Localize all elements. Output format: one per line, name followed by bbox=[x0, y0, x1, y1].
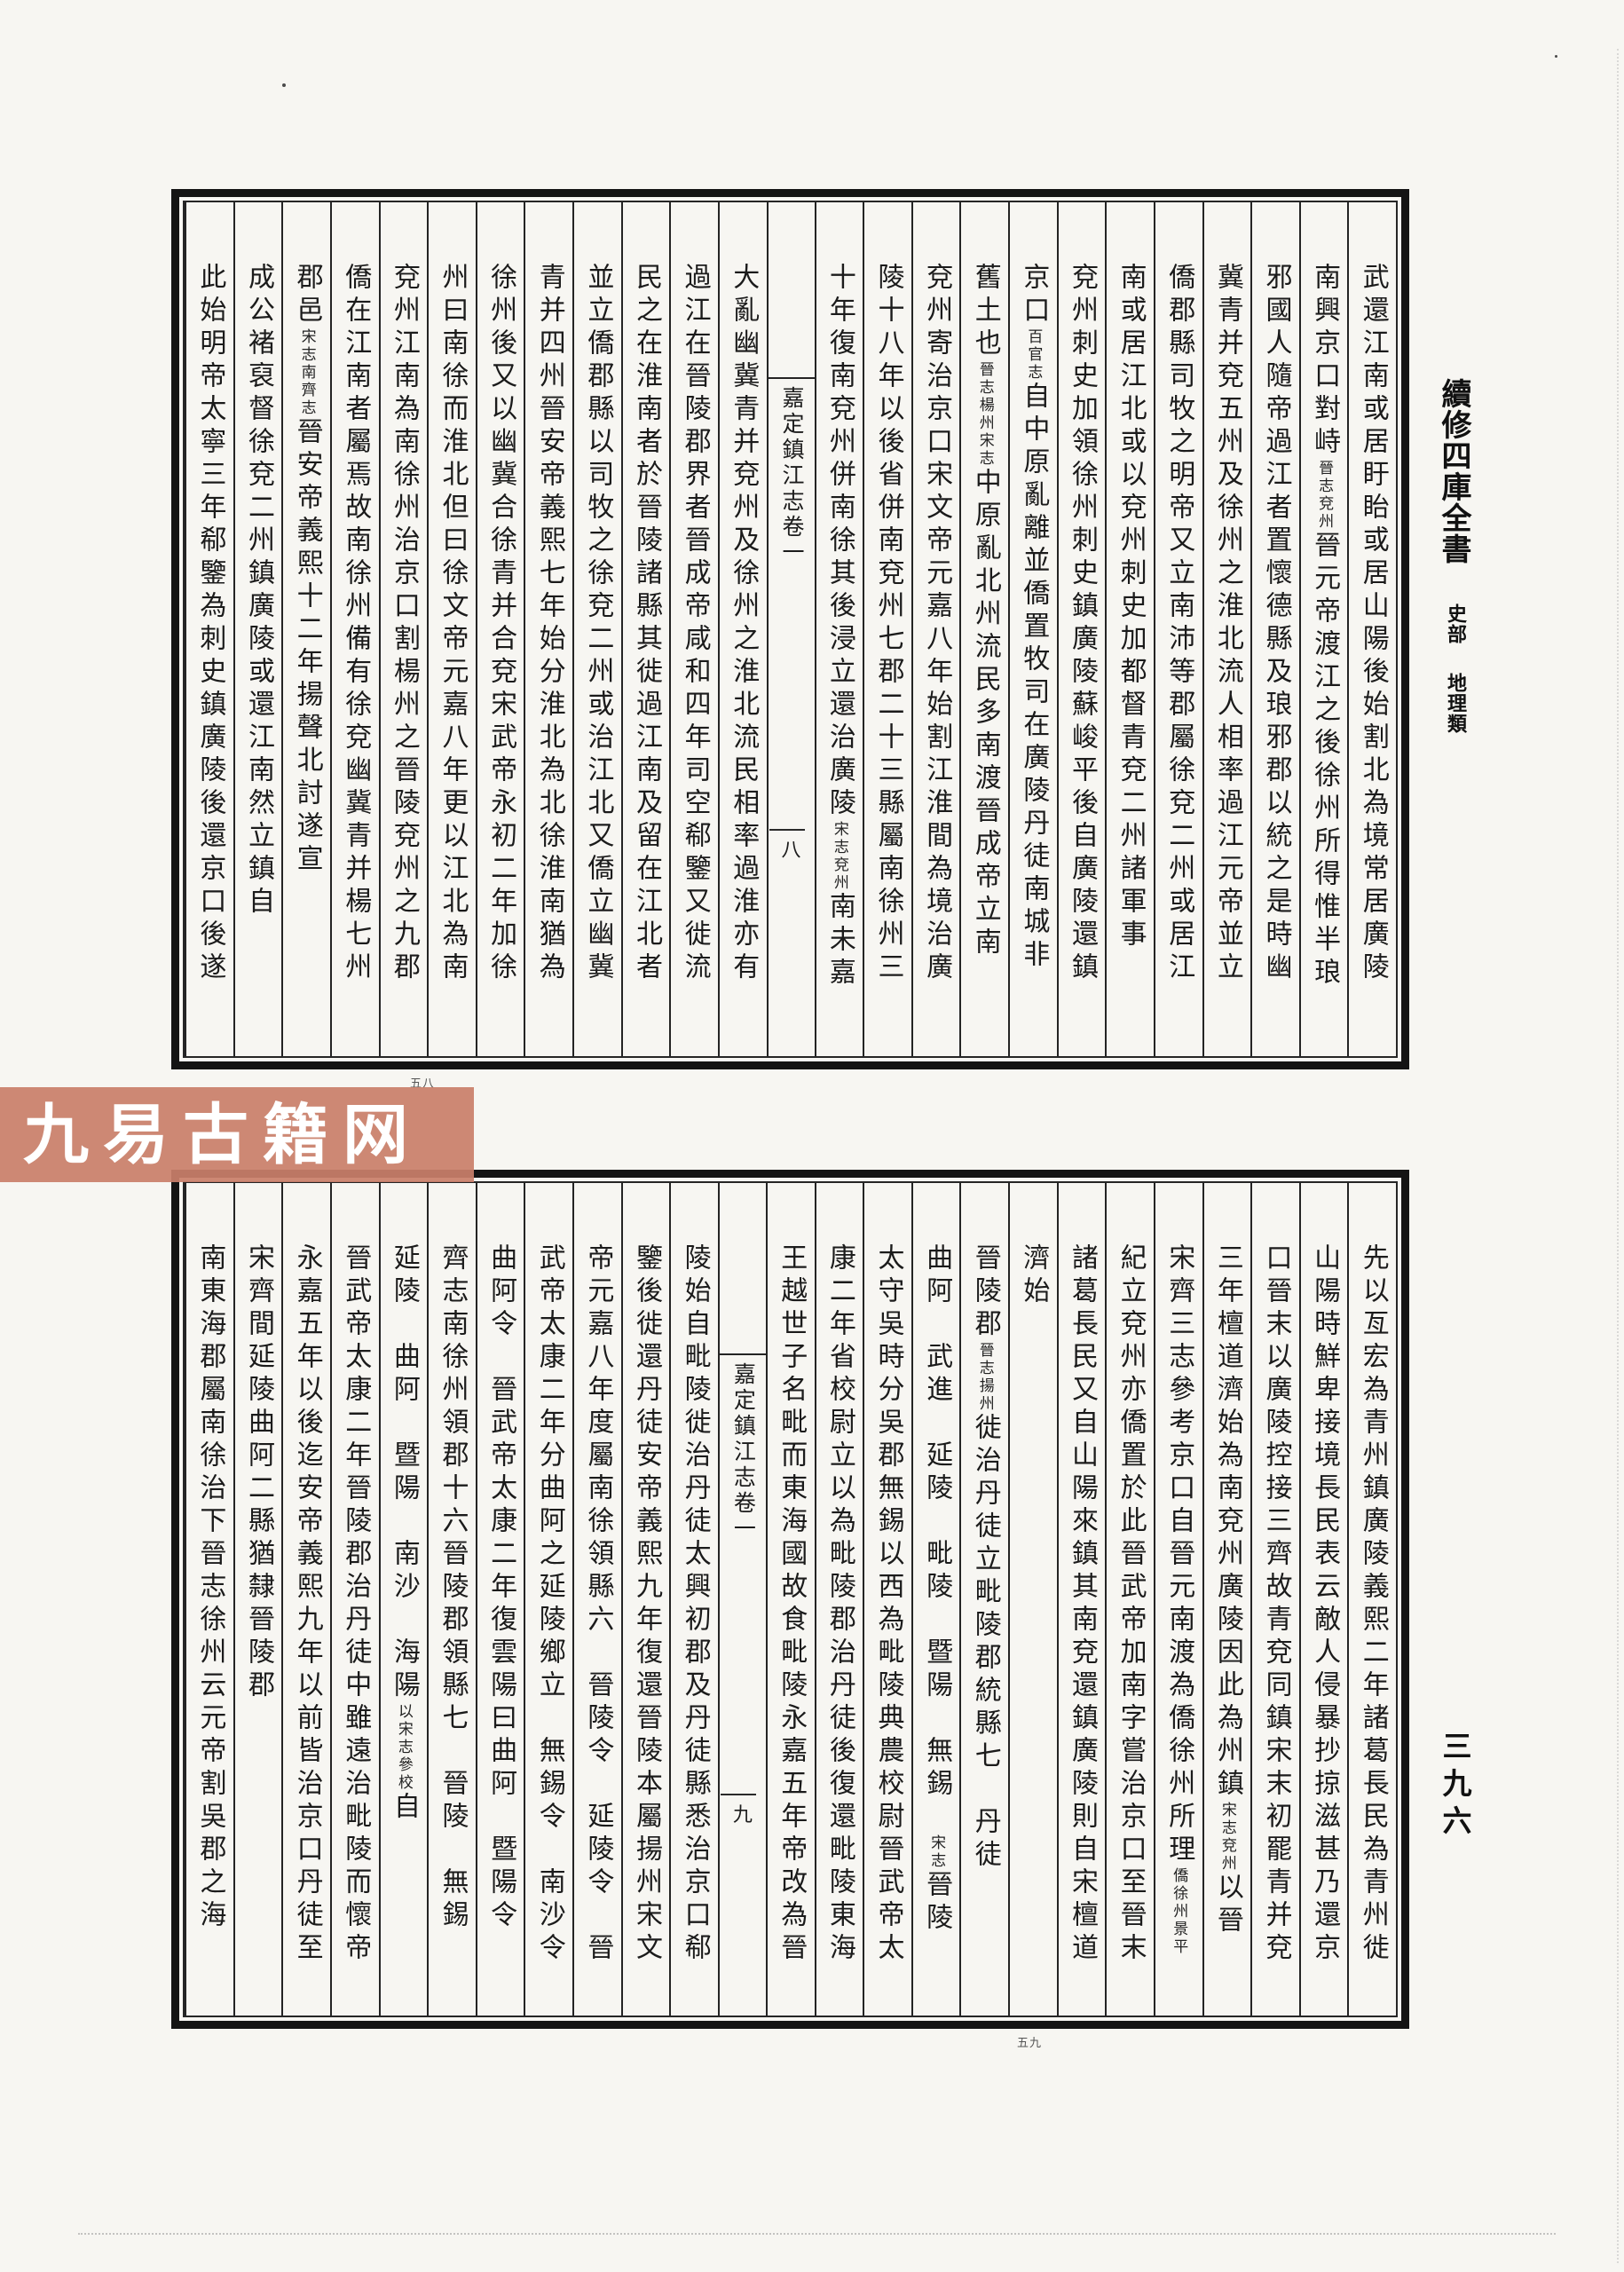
text-column: 晉武帝太康二年晉陵郡治丹徒中雖遠治毗陵而懷帝 bbox=[330, 1183, 379, 2016]
column-text: 兗州刺史加領徐州刺史鎮廣陵蘇峻平後自廣陵還鎮 bbox=[1068, 263, 1095, 985]
lower-text-frame: 先以亙宏為青州鎮廣陵義熙二年諸葛長民為青州徙山陽時鮮卑接境長民表云敵人侵暴抄掠滋… bbox=[171, 1170, 1409, 2029]
text-column: 並立僑郡縣以司牧之徐兗二州或治江北又僑立幽冀 bbox=[572, 202, 621, 1056]
text-segment: 南東海郡屬南徐治下晉志徐州云元帝割吳郡之海 bbox=[195, 1243, 225, 1933]
text-segment: 十年復南兗州併南徐其後浸立還治廣陵 bbox=[825, 263, 855, 821]
text-column: 民之在淮南者於晉陵諸縣其徙過江南及留在江北者 bbox=[621, 202, 670, 1056]
text-segment: 陵十八年以後省併南兗州七郡二十三縣屬南徐州三 bbox=[873, 263, 903, 985]
text-column: 陵十八年以後省併南兗州七郡二十三縣屬南徐州三 bbox=[863, 202, 911, 1056]
upper-fold-column: 嘉定鎮江志卷一八 bbox=[767, 202, 815, 1056]
column-text: 曲阿 武進 延陵 毗陵 暨陽 無錫 宋志晉陵 bbox=[923, 1243, 950, 1936]
column-text: 鑒後徙還丹徒安帝義熙九年復還晉陵本屬揚州宋文 bbox=[633, 1243, 659, 1966]
text-column: 曲阿 武進 延陵 毗陵 暨陽 無錫 宋志晉陵 bbox=[911, 1183, 960, 2016]
column-text: 青并四州晉安帝義熙七年始分淮北為北徐淮南猶為 bbox=[536, 263, 563, 985]
text-column: 十年復南兗州併南徐其後浸立還治廣陵宋志兗州南未嘉 bbox=[815, 202, 863, 1056]
text-segment: 大亂幽冀青并兗州及徐州之淮北流民相率過淮亦有 bbox=[729, 263, 758, 985]
text-column: 太守吳時分吳郡無錫以西為毗陵典農校尉晉武帝太 bbox=[863, 1183, 911, 2016]
text-segment: 三年檀道濟始為南兗州廣陵因此為州鎮 bbox=[1213, 1243, 1242, 1802]
text-column: 郡邑宋志南齊志晉安帝義熙十二年揚聲北討遂宣 bbox=[281, 202, 330, 1056]
column-text: 紀立兗州亦僑置於此晉武帝加南字嘗治京口至晉末 bbox=[1117, 1243, 1144, 1966]
text-column: 口晉末以廣陵控接三齊故青兗同鎮宋末初罷青并兗 bbox=[1250, 1183, 1299, 2016]
text-segment: 冀青并兗五州及徐州之淮北流人相率過江元帝並立 bbox=[1213, 263, 1242, 985]
column-text: 齊志南徐州領郡十六晉陵郡領縣七 晉陵 無錫 bbox=[438, 1243, 465, 1933]
text-column: 兗州刺史加領徐州刺史鎮廣陵蘇峻平後自廣陵還鎮 bbox=[1057, 202, 1106, 1056]
text-column: 僑郡縣司牧之明帝又立南沛等郡屬徐兗二州或居江 bbox=[1154, 202, 1202, 1056]
text-column: 僑在江南者屬焉故南徐州備有徐兗幽冀青并楊七州 bbox=[330, 202, 379, 1056]
column-text: 成公褚裒督徐兗二州鎮廣陵或還江南然立鎮自 bbox=[245, 263, 272, 919]
text-column: 邪國人隨帝過江者置懷德縣及琅邪郡以統之是時幽 bbox=[1250, 202, 1299, 1056]
column-text: 晉陵郡晉志揚州徙治丹徒立毗陵郡統縣七 丹徒 bbox=[972, 1243, 998, 1873]
text-segment: 兗州江南為南徐州治京口割楊州之晉陵兗州之九郡 bbox=[390, 263, 419, 985]
column-text: 諸葛長民又自山陽來鎮其南兗還鎮廣陵則自宋檀道 bbox=[1068, 1243, 1095, 1966]
watermark-banner: 九易古籍网 bbox=[0, 1087, 474, 1182]
page-number: 三九六 bbox=[1439, 1731, 1468, 1842]
text-column: 舊土也晉志楊州宋志中原亂北州流民多南渡晉成帝立南 bbox=[959, 202, 1008, 1056]
column-text: 舊土也晉志楊州宋志中原亂北州流民多南渡晉成帝立南 bbox=[972, 263, 998, 960]
text-segment: 紀立兗州亦僑置於此晉武帝加南字嘗治京口至晉末 bbox=[1116, 1243, 1146, 1966]
text-segment: 晉陵郡 bbox=[971, 1243, 1000, 1342]
text-segment: 中原亂北州流民多南渡晉成帝立南 bbox=[971, 468, 1000, 960]
column-text: 武還江南或居盱眙或居山陽後始割北為境常居廣陵 bbox=[1360, 263, 1386, 985]
text-segment: 山陽時鮮卑接境長民表云敵人侵暴抄掠滋甚乃還京 bbox=[1310, 1243, 1339, 1966]
text-segment: 京口 bbox=[1019, 263, 1048, 328]
column-text: 宋齊間延陵曲阿二縣猶隸晉陵郡 bbox=[245, 1243, 272, 1703]
text-segment: 成公褚裒督徐兗二州鎮廣陵或還江南然立鎮自 bbox=[244, 263, 273, 919]
text-segment: 鑒後徙還丹徒安帝義熙九年復還晉陵本屬揚州宋文 bbox=[632, 1243, 661, 1966]
text-segment: 徙治丹徒立毗陵郡統縣七 丹徒 bbox=[971, 1413, 1000, 1873]
column-text: 帝元嘉八年度屬南徐領縣六 晉陵令 延陵令 晉 bbox=[584, 1243, 611, 1966]
interlinear-note: 以宋志參校 bbox=[396, 1703, 413, 1792]
text-column: 南東海郡屬南徐治下晉志徐州云元帝割吳郡之海 bbox=[185, 1183, 233, 2016]
interlinear-note: 宋志南齊志 bbox=[299, 328, 316, 417]
text-segment: 宋齊間延陵曲阿二縣猶隸晉陵郡 bbox=[244, 1243, 273, 1703]
text-column: 大亂幽冀青并兗州及徐州之淮北流民相率過淮亦有 bbox=[718, 202, 767, 1056]
column-text: 武帝太康二年分曲阿之延陵鄉立 無錫令 南沙令 bbox=[536, 1243, 563, 1966]
scanned-book-page: 武還江南或居盱眙或居山陽後始割北為境常居廣陵南興京口對峙晉志兗州晉元帝渡江之後徐… bbox=[0, 0, 1624, 2272]
column-text: 邪國人隨帝過江者置懷德縣及琅邪郡以統之是時幽 bbox=[1262, 263, 1289, 985]
fold-empty-box bbox=[769, 202, 815, 379]
volume-title: 嘉定鎮江志卷一 bbox=[731, 1362, 753, 1542]
text-column: 南或居江北或以兗州刺史加都督青兗二州諸軍事 bbox=[1105, 202, 1154, 1056]
column-text: 大亂幽冀青并兗州及徐州之淮北流民相率過淮亦有 bbox=[729, 263, 756, 985]
text-segment: 武帝太康二年分曲阿之延陵鄉立 無錫令 南沙令 bbox=[535, 1243, 564, 1966]
text-segment: 以晉 bbox=[1213, 1873, 1242, 1938]
column-text: 先以亙宏為青州鎮廣陵義熙二年諸葛長民為青州徙 bbox=[1360, 1243, 1386, 1966]
text-segment: 邪國人隨帝過江者置懷德縣及琅邪郡以統之是時幽 bbox=[1261, 263, 1290, 985]
text-segment: 南或居江北或以兗州刺史加都督青兗二州諸軍事 bbox=[1116, 263, 1146, 952]
text-column: 宋齊三志參考京口自晉元南渡為僑徐州所理僑徐州景平 bbox=[1154, 1183, 1202, 2016]
text-segment: 太守吳時分吳郡無錫以西為毗陵典農校尉晉武帝太 bbox=[873, 1243, 903, 1966]
text-segment: 帝元嘉八年度屬南徐領縣六 晉陵令 延陵令 晉 bbox=[583, 1243, 612, 1966]
text-column: 冀青并兗五州及徐州之淮北流人相率過江元帝並立 bbox=[1202, 202, 1251, 1056]
text-column: 武帝太康二年分曲阿之延陵鄉立 無錫令 南沙令 bbox=[524, 1183, 572, 2016]
text-column: 過江在晉陵郡界者晉成帝咸和四年司空郗鑒又徙流 bbox=[669, 202, 718, 1056]
section-label: 史部 bbox=[1446, 603, 1465, 644]
text-segment: 康二年省校尉立以為毗陵郡治丹徒後復還毗陵東海 bbox=[825, 1243, 855, 1966]
column-text: 此始明帝太寧三年郗鑒為刺史鎮廣陵後還京口後遂 bbox=[196, 263, 223, 985]
text-column: 鑒後徙還丹徒安帝義熙九年復還晉陵本屬揚州宋文 bbox=[621, 1183, 670, 2016]
lower-fold-column: 嘉定鎮江志卷一九 bbox=[718, 1183, 766, 2016]
text-column: 京口百官志自中原亂離並僑置牧司在廣陵丹徒南城非 bbox=[1008, 202, 1057, 1056]
text-segment: 自 bbox=[390, 1792, 419, 1825]
text-column: 曲阿令 晉武帝太康二年復雲陽曰曲阿 暨陽令 bbox=[476, 1183, 524, 2016]
text-segment: 僑郡縣司牧之明帝又立南沛等郡屬徐兗二州或居江 bbox=[1164, 263, 1194, 985]
text-column: 徐州後又以幽冀合徐青并合兗宋武帝永初二年加徐 bbox=[476, 202, 524, 1056]
column-text: 州曰南徐而淮北但曰徐文帝元嘉八年更以江北為南 bbox=[438, 263, 465, 985]
column-text: 並立僑郡縣以司牧之徐兗二州或治江北又僑立幽冀 bbox=[584, 263, 611, 985]
text-segment: 諸葛長民又自山陽來鎮其南兗還鎮廣陵則自宋檀道 bbox=[1068, 1243, 1097, 1966]
text-column: 先以亙宏為青州鎮廣陵義熙二年諸葛長民為青州徙 bbox=[1347, 1183, 1396, 2016]
lower-under-mark: 五九 bbox=[1017, 2033, 1042, 2050]
lower-frame-columns: 先以亙宏為青州鎮廣陵義熙二年諸葛長民為青州徙山陽時鮮卑接境長民表云敵人侵暴抄掠滋… bbox=[183, 1181, 1398, 2017]
text-column: 濟始 bbox=[1008, 1183, 1057, 2016]
watermark-text: 九易古籍网 bbox=[0, 1102, 422, 1168]
column-text: 僑郡縣司牧之明帝又立南沛等郡屬徐兗二州或居江 bbox=[1165, 263, 1192, 985]
text-segment: 晉安帝義熙十二年揚聲北討遂宣 bbox=[293, 417, 322, 877]
column-text: 京口百官志自中原亂離並僑置牧司在廣陵丹徒南城非 bbox=[1020, 263, 1046, 973]
text-column: 宋齊間延陵曲阿二縣猶隸晉陵郡 bbox=[233, 1183, 282, 2016]
column-text: 徐州後又以幽冀合徐青并合兗宋武帝永初二年加徐 bbox=[487, 263, 514, 985]
scan-edge-line-right bbox=[1617, 49, 1619, 2263]
scan-speck bbox=[1555, 55, 1557, 58]
text-segment: 自中原亂離並僑置牧司在廣陵丹徒南城非 bbox=[1019, 382, 1048, 973]
interlinear-note: 宋志兗州 bbox=[1219, 1802, 1236, 1873]
upper-text-frame: 武還江南或居盱眙或居山陽後始割北為境常居廣陵南興京口對峙晉志兗州晉元帝渡江之後徐… bbox=[171, 189, 1409, 1069]
text-column: 此始明帝太寧三年郗鑒為刺史鎮廣陵後還京口後遂 bbox=[185, 202, 233, 1056]
text-segment: 晉陵 bbox=[922, 1870, 951, 1936]
text-segment: 南未嘉 bbox=[825, 892, 855, 990]
text-segment: 僑在江南者屬焉故南徐州備有徐兗幽冀青并楊七州 bbox=[341, 263, 370, 985]
text-column: 康二年省校尉立以為毗陵郡治丹徒後復還毗陵東海 bbox=[815, 1183, 863, 2016]
column-text: 濟始 bbox=[1020, 1243, 1046, 1309]
fold-empty-box bbox=[720, 1183, 766, 1355]
column-text: 太守吳時分吳郡無錫以西為毗陵典農校尉晉武帝太 bbox=[874, 1243, 901, 1966]
text-segment: 濟始 bbox=[1019, 1243, 1048, 1309]
column-text: 兗州江南為南徐州治京口割楊州之晉陵兗州之九郡 bbox=[390, 263, 417, 985]
text-column: 南興京口對峙晉志兗州晉元帝渡江之後徐州所得惟半琅 bbox=[1299, 202, 1348, 1056]
column-text: 南興京口對峙晉志兗州晉元帝渡江之後徐州所得惟半琅 bbox=[1311, 263, 1337, 990]
column-text: 南或居江北或以兗州刺史加都督青兗二州諸軍事 bbox=[1117, 263, 1144, 952]
text-segment: 此始明帝太寧三年郗鑒為刺史鎮廣陵後還京口後遂 bbox=[195, 263, 225, 985]
text-segment: 州曰南徐而淮北但曰徐文帝元嘉八年更以江北為南 bbox=[438, 263, 467, 985]
text-segment: 青并四州晉安帝義熙七年始分淮北為北徐淮南猶為 bbox=[535, 263, 564, 985]
text-segment: 舊土也 bbox=[971, 263, 1000, 361]
column-text: 陵十八年以後省併南兗州七郡二十三縣屬南徐州三 bbox=[874, 263, 901, 985]
column-text: 過江在晉陵郡界者晉成帝咸和四年司空郗鑒又徙流 bbox=[682, 263, 708, 985]
text-segment: 陵始自毗陵徙治丹徒太興初郡及丹徒縣悉治京口郗 bbox=[681, 1243, 710, 1966]
column-text: 宋齊三志參考京口自晉元南渡為僑徐州所理僑徐州景平 bbox=[1165, 1243, 1192, 1956]
category-label: 地理類 bbox=[1446, 673, 1465, 734]
series-title: 續修四庫全書 bbox=[1438, 378, 1468, 564]
text-segment: 南興京口對峙 bbox=[1310, 263, 1339, 460]
text-segment: 宋齊三志參考京口自晉元南渡為僑徐州所理 bbox=[1164, 1243, 1194, 1867]
text-segment: 過江在晉陵郡界者晉成帝咸和四年司空郗鑒又徙流 bbox=[681, 263, 710, 985]
text-column: 青并四州晉安帝義熙七年始分淮北為北徐淮南猶為 bbox=[524, 202, 572, 1056]
text-segment: 齊志南徐州領郡十六晉陵郡領縣七 晉陵 無錫 bbox=[438, 1243, 467, 1933]
column-text: 康二年省校尉立以為毗陵郡治丹徒後復還毗陵東海 bbox=[826, 1243, 853, 1966]
text-column: 晉陵郡晉志揚州徙治丹徒立毗陵郡統縣七 丹徒 bbox=[959, 1183, 1008, 2016]
volume-title: 嘉定鎮江志卷一 bbox=[780, 386, 802, 566]
scan-speck bbox=[282, 83, 286, 87]
text-segment: 晉武帝太康二年晉陵郡治丹徒中雖遠治毗陵而懷帝 bbox=[341, 1243, 370, 1966]
text-segment: 郡邑 bbox=[293, 263, 322, 328]
leaf-number: 八 bbox=[781, 834, 800, 863]
text-segment: 晉元帝渡江之後徐州所得惟半琅 bbox=[1310, 531, 1339, 990]
text-column: 三年檀道濟始為南兗州廣陵因此為州鎮宋志兗州以晉 bbox=[1202, 1183, 1251, 2016]
text-segment: 兗州刺史加領徐州刺史鎮廣陵蘇峻平後自廣陵還鎮 bbox=[1068, 263, 1097, 985]
interlinear-note: 百官志 bbox=[1025, 328, 1042, 382]
column-text: 郡邑宋志南齊志晉安帝義熙十二年揚聲北討遂宣 bbox=[294, 263, 320, 877]
leaf-number: 九 bbox=[733, 1799, 753, 1827]
text-segment: 並立僑郡縣以司牧之徐兗二州或治江北又僑立幽冀 bbox=[583, 263, 612, 985]
text-column: 陵始自毗陵徙治丹徒太興初郡及丹徒縣悉治京口郗 bbox=[669, 1183, 718, 2016]
text-segment: 先以亙宏為青州鎮廣陵義熙二年諸葛長民為青州徙 bbox=[1359, 1243, 1388, 1966]
text-column: 成公褚裒督徐兗二州鎮廣陵或還江南然立鎮自 bbox=[233, 202, 282, 1056]
column-text: 民之在淮南者於晉陵諸縣其徙過江南及留在江北者 bbox=[633, 263, 659, 985]
text-column: 延陵 曲阿 暨陽 南沙 海陽以宋志參校自 bbox=[379, 1183, 428, 2016]
column-text: 南東海郡屬南徐治下晉志徐州云元帝割吳郡之海 bbox=[196, 1243, 223, 1933]
text-column: 武還江南或居盱眙或居山陽後始割北為境常居廣陵 bbox=[1347, 202, 1396, 1056]
column-text: 僑在江南者屬焉故南徐州備有徐兗幽冀青并楊七州 bbox=[342, 263, 368, 985]
column-text: 曲阿令 晉武帝太康二年復雲陽曰曲阿 暨陽令 bbox=[487, 1243, 514, 1933]
text-segment: 民之在淮南者於晉陵諸縣其徙過江南及留在江北者 bbox=[632, 263, 661, 985]
text-segment: 永嘉五年以後迄安帝義熙九年以前皆治京口丹徒至 bbox=[293, 1243, 322, 1966]
column-text: 冀青并兗五州及徐州之淮北流人相率過江元帝並立 bbox=[1214, 263, 1241, 985]
interlinear-note: 宋志兗州 bbox=[832, 821, 848, 892]
column-text: 兗州寄治京口宋文帝元嘉八年始割江淮間為境治廣 bbox=[923, 263, 950, 985]
column-text: 陵始自毗陵徙治丹徒太興初郡及丹徒縣悉治京口郗 bbox=[682, 1243, 708, 1966]
text-column: 紀立兗州亦僑置於此晉武帝加南字嘗治京口至晉末 bbox=[1105, 1183, 1154, 2016]
interlinear-note: 晉志兗州 bbox=[1316, 460, 1333, 531]
text-segment: 徐州後又以幽冀合徐青并合兗宋武帝永初二年加徐 bbox=[486, 263, 516, 985]
text-column: 帝元嘉八年度屬南徐領縣六 晉陵令 延陵令 晉 bbox=[572, 1183, 621, 2016]
text-segment: 曲阿 武進 延陵 毗陵 暨陽 無錫 bbox=[922, 1243, 951, 1834]
text-segment: 王越世子名毗而東海國故食毗陵永嘉五年帝改為晉 bbox=[777, 1243, 806, 1966]
text-segment: 延陵 曲阿 暨陽 南沙 海陽 bbox=[390, 1243, 419, 1703]
interlinear-note: 晉志揚州 bbox=[977, 1342, 994, 1413]
upper-frame-columns: 武還江南或居盱眙或居山陽後始割北為境常居廣陵南興京口對峙晉志兗州晉元帝渡江之後徐… bbox=[183, 201, 1398, 1058]
text-segment: 口晉末以廣陵控接三齊故青兗同鎮宋末初罷青并兗 bbox=[1261, 1243, 1290, 1966]
scan-edge-line-bottom bbox=[78, 2233, 1556, 2235]
text-column: 王越世子名毗而東海國故食毗陵永嘉五年帝改為晉 bbox=[766, 1183, 815, 2016]
text-column: 州曰南徐而淮北但曰徐文帝元嘉八年更以江北為南 bbox=[427, 202, 476, 1056]
text-column: 山陽時鮮卑接境長民表云敵人侵暴抄掠滋甚乃還京 bbox=[1299, 1183, 1348, 2016]
column-text: 口晉末以廣陵控接三齊故青兗同鎮宋末初罷青并兗 bbox=[1262, 1243, 1289, 1966]
interlinear-note: 僑徐州景平 bbox=[1171, 1867, 1187, 1956]
column-text: 山陽時鮮卑接境長民表云敵人侵暴抄掠滋甚乃還京 bbox=[1311, 1243, 1337, 1966]
column-text: 十年復南兗州併南徐其後浸立還治廣陵宋志兗州南未嘉 bbox=[826, 263, 853, 990]
text-column: 齊志南徐州領郡十六晉陵郡領縣七 晉陵 無錫 bbox=[427, 1183, 476, 2016]
text-column: 諸葛長民又自山陽來鎮其南兗還鎮廣陵則自宋檀道 bbox=[1057, 1183, 1106, 2016]
text-segment: 兗州寄治京口宋文帝元嘉八年始割江淮間為境治廣 bbox=[922, 263, 951, 985]
column-text: 晉武帝太康二年晉陵郡治丹徒中雖遠治毗陵而懷帝 bbox=[342, 1243, 368, 1966]
text-column: 永嘉五年以後迄安帝義熙九年以前皆治京口丹徒至 bbox=[281, 1183, 330, 2016]
column-text: 三年檀道濟始為南兗州廣陵因此為州鎮宋志兗州以晉 bbox=[1214, 1243, 1241, 1938]
interlinear-note: 宋志 bbox=[928, 1834, 945, 1870]
text-column: 兗州寄治京口宋文帝元嘉八年始割江淮間為境治廣 bbox=[911, 202, 960, 1056]
text-column: 兗州江南為南徐州治京口割楊州之晉陵兗州之九郡 bbox=[379, 202, 428, 1056]
text-segment: 曲阿令 晉武帝太康二年復雲陽曰曲阿 暨陽令 bbox=[486, 1243, 516, 1933]
column-text: 王越世子名毗而東海國故食毗陵永嘉五年帝改為晉 bbox=[777, 1243, 804, 1966]
interlinear-note: 晉志楊州宋志 bbox=[977, 361, 994, 468]
column-text: 延陵 曲阿 暨陽 南沙 海陽以宋志參校自 bbox=[390, 1243, 417, 1825]
column-text: 永嘉五年以後迄安帝義熙九年以前皆治京口丹徒至 bbox=[294, 1243, 320, 1966]
text-segment: 武還江南或居盱眙或居山陽後始割北為境常居廣陵 bbox=[1359, 263, 1388, 985]
